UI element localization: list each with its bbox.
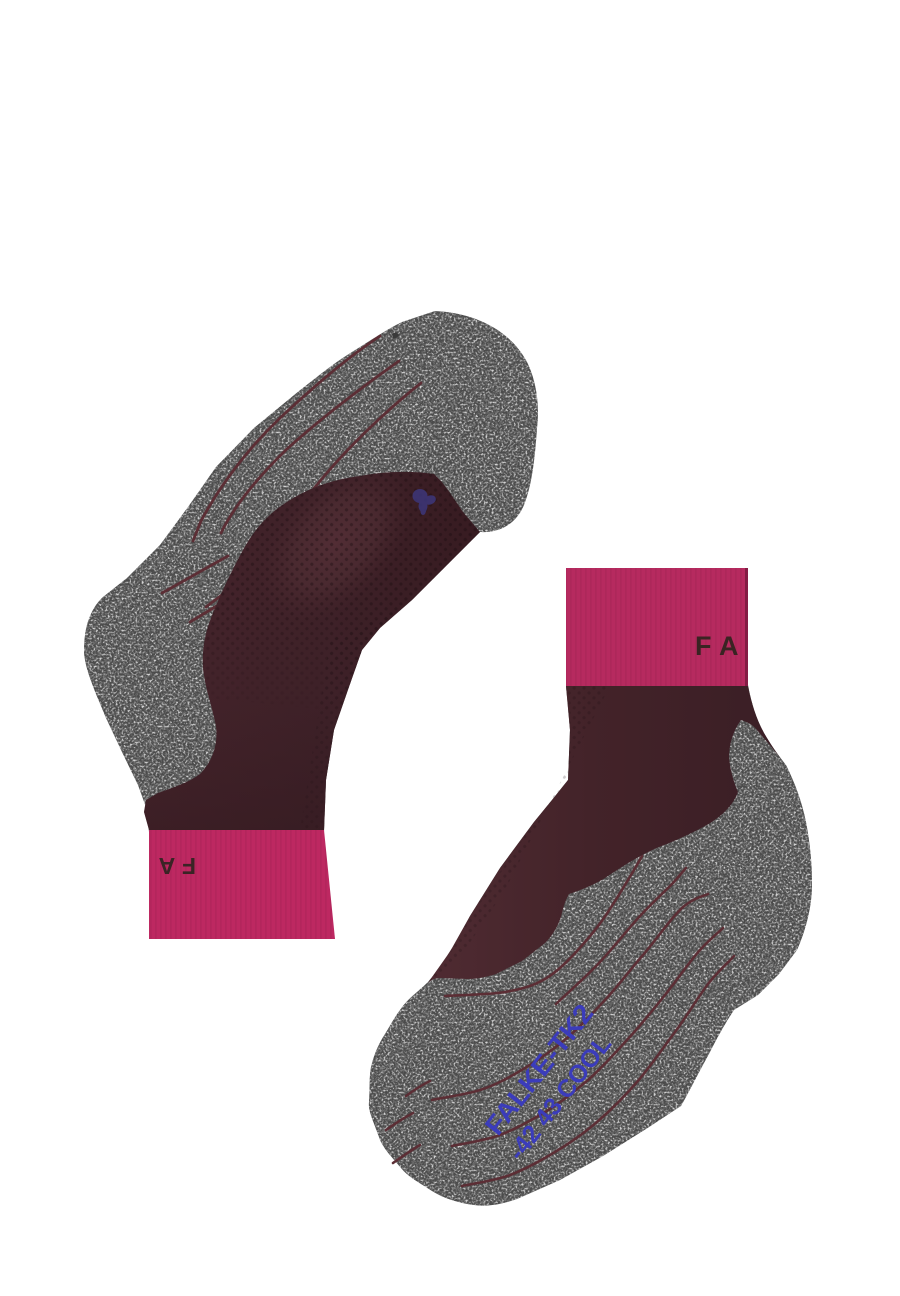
svg-text:FA: FA — [151, 853, 196, 879]
svg-text:FA: FA — [695, 631, 748, 661]
